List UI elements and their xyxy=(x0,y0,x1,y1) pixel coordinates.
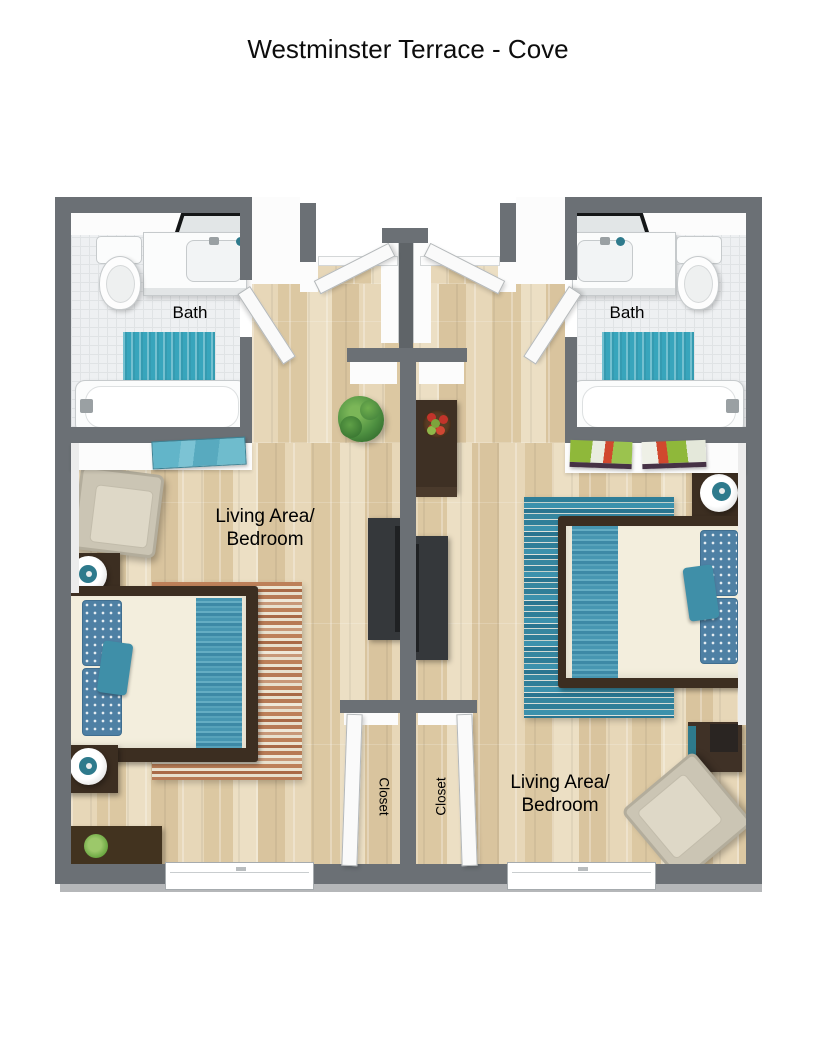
bath-mat-left xyxy=(123,332,215,385)
toilet-seat xyxy=(106,265,135,303)
wall-bath-right-west-upper xyxy=(565,213,577,280)
artwork-right-unit-2 xyxy=(642,440,707,469)
desk-left-unit xyxy=(62,826,162,866)
vestibule-face-left xyxy=(252,197,300,284)
label-living-right-line1: Living Area/ xyxy=(488,772,632,794)
floor-plan-page: Westminster Terrace - Cove xyxy=(0,0,816,1056)
tub-basin xyxy=(582,386,736,428)
label-closet-left: Closet xyxy=(377,762,392,832)
window-handle xyxy=(578,867,588,871)
east-wall-inner-face xyxy=(738,443,746,725)
west-wall-inner-face xyxy=(71,443,79,593)
plant-leaf-cluster xyxy=(340,416,362,438)
center-spine-wall xyxy=(400,362,416,868)
window-mullion xyxy=(170,872,309,873)
page-title: Westminster Terrace - Cove xyxy=(0,34,816,65)
armchair-left-unit xyxy=(71,465,165,559)
table-lamp-right-unit xyxy=(700,474,738,512)
cabinet-box xyxy=(710,724,738,752)
tub-faucet xyxy=(726,399,739,413)
fruit-bowl xyxy=(423,410,451,438)
bathtub-left xyxy=(75,380,247,434)
toilet-bowl-left xyxy=(99,256,141,310)
console-table-front xyxy=(413,487,457,497)
label-living-left-line2: Bedroom xyxy=(193,529,337,551)
vestibule-face-right xyxy=(516,197,565,284)
label-closet-right: Closet xyxy=(434,762,449,832)
faucet xyxy=(209,237,219,245)
entry-stub-wall-left xyxy=(300,203,316,262)
window-mullion xyxy=(512,872,651,873)
closet-top-wall xyxy=(340,700,477,713)
artwork-left-unit xyxy=(151,437,246,470)
window-right-unit xyxy=(507,862,656,890)
window-handle xyxy=(236,867,246,871)
table-lamp-left-lower xyxy=(70,748,107,785)
cup-teal xyxy=(616,237,625,246)
plant-leaf-cluster xyxy=(360,400,380,420)
armchair-cushion xyxy=(89,484,154,549)
label-living-left-line1: Living Area/ xyxy=(193,506,337,528)
bed-runner-right xyxy=(572,526,618,678)
potted-plant xyxy=(338,396,384,442)
wall-top-left xyxy=(55,197,252,213)
faucet xyxy=(600,237,610,245)
entry-jamb-left xyxy=(300,262,318,292)
toilet-seat xyxy=(684,265,713,303)
green-plate xyxy=(84,834,108,858)
toilet-bowl-right xyxy=(677,256,719,310)
wall-east xyxy=(746,197,762,884)
tub-basin xyxy=(85,386,239,428)
center-spine-upper xyxy=(399,243,413,348)
tv-console-right-unit xyxy=(414,536,448,660)
wall-bath-left-east-upper xyxy=(240,213,252,280)
label-bath-right: Bath xyxy=(587,303,667,323)
cross-wall-face-left xyxy=(350,362,397,384)
center-t-bar-wall xyxy=(382,228,428,243)
wall-top-right xyxy=(565,197,762,213)
cross-wall-face-right xyxy=(419,362,464,384)
bathtub-right xyxy=(572,380,744,434)
bed-runner-left xyxy=(196,598,242,748)
lamp-finial xyxy=(719,488,725,494)
fruit-green xyxy=(431,419,440,428)
label-living-right-line2: Bedroom xyxy=(488,795,632,817)
window-left-unit xyxy=(165,862,314,890)
wall-west xyxy=(55,197,71,884)
tub-faucet xyxy=(80,399,93,413)
label-bath-left: Bath xyxy=(150,303,230,323)
artwork-right-unit-1 xyxy=(570,440,633,469)
bath-mat-right xyxy=(602,332,694,385)
entry-cross-wall xyxy=(347,348,467,362)
lamp-finial xyxy=(86,763,92,769)
sink-left-bath xyxy=(186,240,242,282)
sink-right-bath xyxy=(577,240,633,282)
lamp-finial xyxy=(86,571,92,577)
entry-stub-wall-right xyxy=(500,203,516,262)
